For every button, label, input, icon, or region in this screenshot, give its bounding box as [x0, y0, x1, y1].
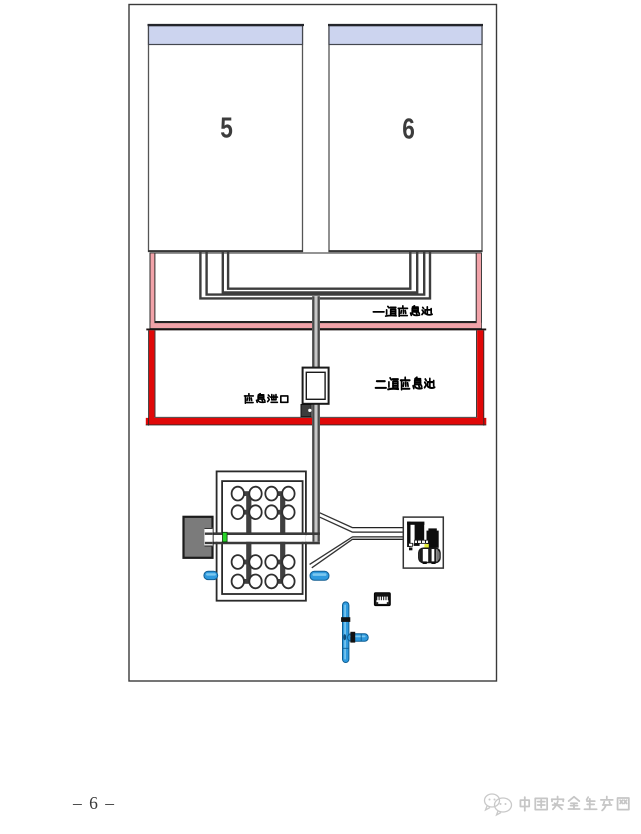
svg-text:5: 5: [220, 111, 233, 144]
svg-text:6: 6: [402, 112, 415, 145]
